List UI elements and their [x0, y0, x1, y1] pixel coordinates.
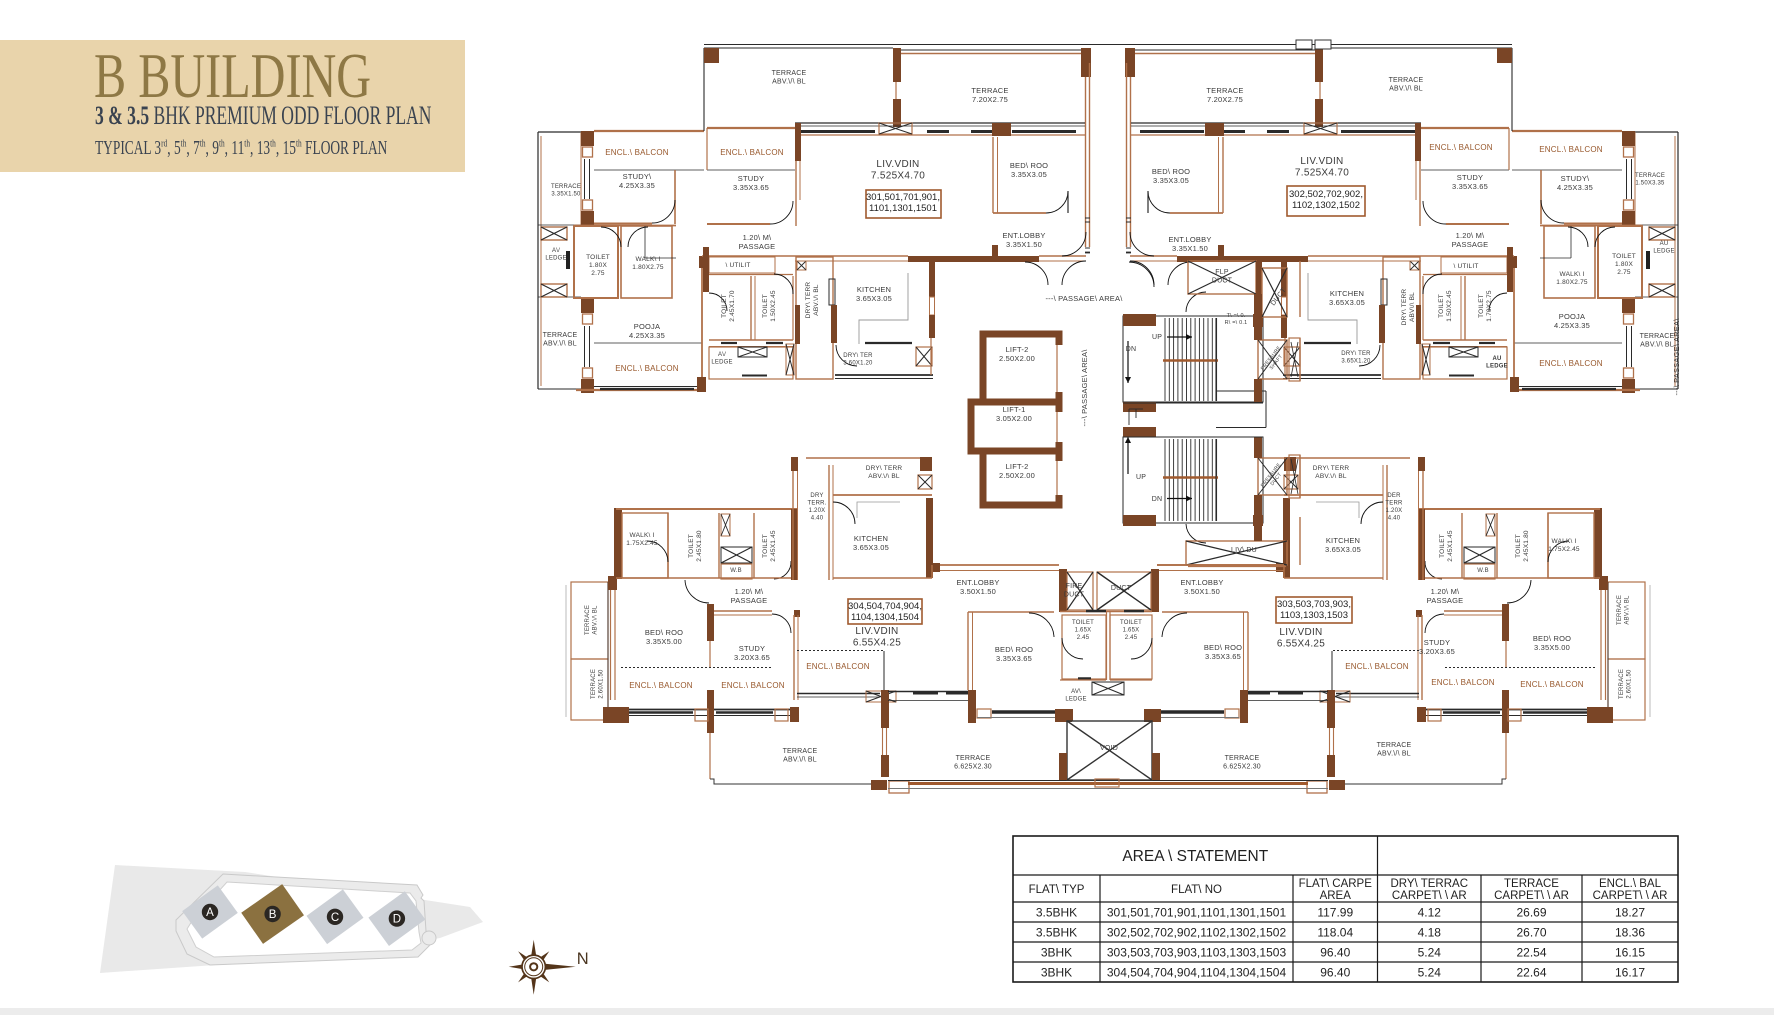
svg-text:LIV.VDIN7.525X4.70: LIV.VDIN7.525X4.70	[1295, 156, 1349, 179]
svg-text:LIV.VDIN6.55X4.25: LIV.VDIN6.55X4.25	[853, 626, 901, 649]
svg-text:TERRACE2.60X1.50: TERRACE2.60X1.50	[591, 669, 605, 699]
svg-text:N: N	[577, 950, 589, 968]
svg-text:KITCHEN3.65X3.05: KITCHEN3.65X3.05	[856, 285, 892, 303]
svg-text:ENCL.\ BALCON: ENCL.\ BALCON	[1431, 678, 1495, 687]
svg-text:302,502,702,902,1102,1302,1502: 302,502,702,902,1102,1302,1502	[1289, 189, 1363, 211]
svg-text:TERRACEABV.\/\ BL: TERRACEABV.\/\ BL	[772, 70, 807, 86]
svg-text:WALK\ I1.75X2.45: WALK\ I1.75X2.45	[626, 532, 658, 547]
svg-text:\ UTILIT: \ UTILIT	[1453, 263, 1478, 270]
svg-text:26.69: 26.69	[1516, 906, 1546, 920]
svg-text:STUDY3.35X3.65: STUDY3.35X3.65	[733, 174, 769, 192]
svg-text:BED\ ROO3.35X3.65: BED\ ROO3.35X3.65	[1204, 643, 1242, 661]
svg-text:KITCHEN3.65X3.05: KITCHEN3.65X3.05	[1329, 289, 1365, 307]
svg-text:FLAT\ NO: FLAT\ NO	[1171, 884, 1222, 896]
svg-text:TOILET2.45X1.80: TOILET2.45X1.80	[688, 530, 703, 562]
svg-text:304,504,704,904,1104,1304,1504: 304,504,704,904,1104,1304,1504	[1107, 966, 1287, 980]
svg-text:DUCT: DUCT	[1111, 585, 1132, 592]
svg-text:304,504,704,904,1104,1304,1504: 304,504,704,904,1104,1304,1504	[848, 601, 922, 623]
svg-text:KITCHEN3.65X3.05: KITCHEN3.65X3.05	[853, 534, 889, 552]
svg-text:POOJA4.25X3.35: POOJA4.25X3.35	[1554, 312, 1590, 330]
svg-text:16.15: 16.15	[1615, 946, 1645, 960]
svg-text:16.17: 16.17	[1615, 966, 1645, 980]
svg-text:TERRACE6.625X2.30: TERRACE6.625X2.30	[954, 755, 992, 771]
svg-text:TERRACE7.20X2.75: TERRACE7.20X2.75	[971, 86, 1008, 104]
svg-text:B: B	[269, 909, 277, 921]
svg-text:---\ PASSAGE\ AREA\: ---\ PASSAGE\ AREA\	[1080, 349, 1089, 427]
svg-text:KITCHEN3.65X3.05: KITCHEN3.65X3.05	[1325, 536, 1361, 554]
svg-text:301,501,701,901,1101,1301,1501: 301,501,701,901,1101,1301,1501	[866, 192, 940, 214]
svg-text:CARPET\ \ AR: CARPET\ \ AR	[1494, 890, 1569, 902]
svg-text:1.20\ M\PASSAGE: 1.20\ M\PASSAGE	[1452, 231, 1489, 249]
svg-text:TOILET2.45X1.45: TOILET2.45X1.45	[762, 530, 777, 562]
svg-text:DRY\ TER3.60X1.20: DRY\ TER3.60X1.20	[843, 353, 873, 367]
svg-text:18.36: 18.36	[1615, 926, 1645, 940]
svg-text:DRY\ TER3.65X1.20: DRY\ TER3.65X1.20	[1341, 351, 1371, 365]
svg-text:96.40: 96.40	[1320, 946, 1350, 960]
svg-text:FLAT\ TYP: FLAT\ TYP	[1029, 884, 1085, 896]
svg-text:3BHK: 3BHK	[1041, 946, 1072, 960]
svg-text:26.70: 26.70	[1516, 926, 1546, 940]
svg-text:TOILET1.50X2.45: TOILET1.50X2.45	[1438, 290, 1453, 322]
svg-text:ENT.LOBBY3.35X1.50: ENT.LOBBY3.35X1.50	[1168, 235, 1211, 253]
svg-text:\ UTILIT: \ UTILIT	[725, 262, 750, 269]
svg-text:LIV\ DU: LIV\ DU	[1231, 547, 1257, 554]
svg-text:DRY\ TERRAC: DRY\ TERRAC	[1390, 878, 1468, 890]
svg-text:TERRACE6.625X2.30: TERRACE6.625X2.30	[1223, 755, 1261, 771]
svg-text:TOILET1.50X2.45: TOILET1.50X2.45	[762, 290, 777, 322]
svg-text:5.24: 5.24	[1418, 946, 1442, 960]
svg-text:STUDY3.20X3.65: STUDY3.20X3.65	[734, 644, 770, 662]
svg-text:TERRACE: TERRACE	[1504, 878, 1559, 890]
svg-text:BED\ ROO3.35X5.00: BED\ ROO3.35X5.00	[645, 628, 683, 646]
svg-text:D: D	[393, 914, 401, 926]
svg-text:UP: UP	[1152, 334, 1162, 341]
svg-text:C: C	[331, 912, 339, 924]
svg-text:TERRACEABV.\/\ BL: TERRACEABV.\/\ BL	[1640, 333, 1675, 349]
svg-text:ENCL.\ BALCON: ENCL.\ BALCON	[615, 364, 679, 373]
svg-text:TOILET2.45X1.80: TOILET2.45X1.80	[1515, 530, 1530, 562]
svg-text:BED\ ROO3.35X3.05: BED\ ROO3.35X3.05	[1152, 167, 1190, 185]
svg-text:DRY\ TERRABV\/\ BL: DRY\ TERRABV\/\ BL	[1401, 289, 1416, 326]
svg-text:1.20\ M\PASSAGE: 1.20\ M\PASSAGE	[1427, 587, 1464, 605]
svg-text:DN: DN	[1126, 346, 1137, 353]
svg-text:1.20\ M\PASSAGE: 1.20\ M\PASSAGE	[731, 587, 768, 605]
svg-text:STUDY3.35X3.65: STUDY3.35X3.65	[1452, 173, 1488, 191]
svg-text:TERRACEABV.\/\ BL: TERRACEABV.\/\ BL	[783, 748, 818, 764]
svg-text:ENT.LOBBY3.50X1.50: ENT.LOBBY3.50X1.50	[956, 578, 999, 596]
svg-text:---\ PASSAGE\ AREA\: ---\ PASSAGE\ AREA\	[1672, 318, 1681, 396]
svg-text:ENCL.\ BALCON: ENCL.\ BALCON	[1539, 359, 1603, 368]
svg-text:TERRACEABV.\/\ BL: TERRACEABV.\/\ BL	[1389, 77, 1424, 93]
svg-text:22.64: 22.64	[1516, 966, 1546, 980]
svg-text:22.54: 22.54	[1516, 946, 1546, 960]
svg-text:STUDY\4.25X3.35: STUDY\4.25X3.35	[619, 172, 655, 190]
svg-text:FLAT\ CARPE: FLAT\ CARPE	[1299, 878, 1373, 890]
svg-text:FIREDUCT: FIREDUCT	[1064, 583, 1085, 599]
svg-text:POOJA4.25X3.35: POOJA4.25X3.35	[629, 322, 665, 340]
svg-text:WALK\ I1.80X2.75: WALK\ I1.80X2.75	[1556, 271, 1588, 286]
svg-text:ENCL.\ BALCON: ENCL.\ BALCON	[1429, 143, 1493, 152]
svg-text:18.27: 18.27	[1615, 906, 1645, 920]
svg-text:301,501,701,901,1101,1301,1501: 301,501,701,901,1101,1301,1501	[1107, 906, 1287, 920]
svg-text:ENCL.\ BAL: ENCL.\ BAL	[1599, 878, 1662, 890]
svg-text:TERRACEABV.\/\ BL: TERRACEABV.\/\ BL	[1377, 742, 1412, 758]
svg-text:TERRACEABV.\/\ BL: TERRACEABV.\/\ BL	[585, 605, 599, 635]
svg-text:303,503,703,903,1103,1303,1503: 303,503,703,903,1103,1303,1503	[1107, 946, 1287, 960]
svg-text:302,502,702,902,1102,1302,1502: 302,502,702,902,1102,1302,1502	[1107, 926, 1287, 940]
svg-text:DRY\ TERRABV.\/\ BL: DRY\ TERRABV.\/\ BL	[805, 282, 820, 319]
svg-text:ENT.LOBBY3.50X1.50: ENT.LOBBY3.50X1.50	[1180, 578, 1223, 596]
svg-text:ENCL.\ BALCON: ENCL.\ BALCON	[721, 681, 785, 690]
svg-text:TERRACEABV.\/\ BL: TERRACEABV.\/\ BL	[1617, 595, 1631, 625]
svg-text:ENCL.\ BALCON: ENCL.\ BALCON	[1539, 145, 1603, 154]
svg-text:ENCL.\ BALCON: ENCL.\ BALCON	[629, 681, 693, 690]
svg-text:118.04: 118.04	[1317, 926, 1353, 940]
svg-text:1.20\ M\PASSAGE: 1.20\ M\PASSAGE	[739, 233, 776, 251]
svg-text:DN: DN	[1152, 496, 1163, 503]
svg-text:ENCL.\ BALCON: ENCL.\ BALCON	[605, 148, 669, 157]
svg-text:A: A	[206, 907, 214, 919]
svg-text:TOILET2.45X1.45: TOILET2.45X1.45	[1439, 530, 1454, 562]
svg-text:5.24: 5.24	[1418, 966, 1442, 980]
svg-text:DRY\ TERRABV.\/\ BL: DRY\ TERRABV.\/\ BL	[1313, 465, 1350, 480]
svg-text:STUDY\4.25X3.35: STUDY\4.25X3.35	[1557, 174, 1593, 192]
svg-text:DRY\ TERRABV.\/\ BL: DRY\ TERRABV.\/\ BL	[866, 465, 903, 480]
svg-text:CARPET\ \ AR: CARPET\ \ AR	[1392, 890, 1467, 902]
svg-text:W.B: W.B	[730, 568, 742, 574]
svg-text:AREA: AREA	[1320, 890, 1352, 902]
svg-text:3.5BHK: 3.5BHK	[1036, 926, 1077, 940]
svg-text:TERRACE2.60X1.50: TERRACE2.60X1.50	[1619, 669, 1633, 699]
svg-text:BED\ ROO3.35X5.00: BED\ ROO3.35X5.00	[1533, 634, 1571, 652]
svg-text:WALK\ I1.80X2.75: WALK\ I1.80X2.75	[632, 256, 664, 271]
svg-text:TERRACE7.20X2.75: TERRACE7.20X2.75	[1206, 86, 1243, 104]
svg-text:TERRACE1.50X3.35: TERRACE1.50X3.35	[1635, 173, 1665, 187]
svg-text:TOILET1.70X2.75: TOILET1.70X2.75	[1478, 290, 1493, 322]
svg-text:96.40: 96.40	[1320, 966, 1350, 980]
svg-text:---\ PASSAGE\ AREA\: ---\ PASSAGE\ AREA\	[1045, 294, 1123, 303]
svg-text:VOID: VOID	[1100, 745, 1118, 752]
svg-text:ENCL.\ BALCON: ENCL.\ BALCON	[1345, 662, 1409, 671]
svg-text:TOILET2.45X1.70: TOILET2.45X1.70	[721, 290, 736, 322]
svg-text:TERRACEABV.\/\ BL: TERRACEABV.\/\ BL	[543, 332, 578, 348]
svg-text:BED\ ROO3.35X3.05: BED\ ROO3.35X3.05	[1010, 161, 1048, 179]
svg-text:UP: UP	[1136, 474, 1146, 481]
svg-text:CARPET\ \ AR: CARPET\ \ AR	[1593, 890, 1668, 902]
svg-text:TERRACE3.35X1.50: TERRACE3.35X1.50	[551, 184, 581, 198]
svg-text:STUDY3.20X3.65: STUDY3.20X3.65	[1419, 638, 1455, 656]
svg-text:3BHK: 3BHK	[1041, 966, 1072, 980]
svg-text:AREA \ STATEMENT: AREA \ STATEMENT	[1122, 848, 1268, 865]
svg-text:LIV.VDIN6.55X4.25: LIV.VDIN6.55X4.25	[1277, 627, 1325, 650]
svg-text:3.5BHK: 3.5BHK	[1036, 906, 1077, 920]
svg-text:T\ =\ 0.R\ =\ 0.1: T\ =\ 0.R\ =\ 0.1	[1225, 313, 1248, 326]
svg-text:117.99: 117.99	[1317, 906, 1353, 920]
svg-text:4.18: 4.18	[1418, 926, 1442, 940]
svg-text:ENT.LOBBY3.35X1.50: ENT.LOBBY3.35X1.50	[1002, 231, 1045, 249]
svg-text:ENCL.\ BALCON: ENCL.\ BALCON	[1520, 680, 1584, 689]
svg-text:BED\ ROO3.35X3.65: BED\ ROO3.35X3.65	[995, 645, 1033, 663]
svg-text:ENCL.\ BALCON: ENCL.\ BALCON	[720, 148, 784, 157]
svg-text:303,503,703,903,1103,1303,1503: 303,503,703,903,1103,1303,1503	[1277, 599, 1351, 621]
svg-text:WALK\ I1.75X2.45: WALK\ I1.75X2.45	[1548, 538, 1580, 553]
svg-text:ENCL.\ BALCON: ENCL.\ BALCON	[806, 662, 870, 671]
svg-text:W.B: W.B	[1477, 568, 1489, 574]
svg-text:4.12: 4.12	[1418, 906, 1442, 920]
svg-text:LIV.VDIN7.525X4.70: LIV.VDIN7.525X4.70	[871, 159, 925, 182]
